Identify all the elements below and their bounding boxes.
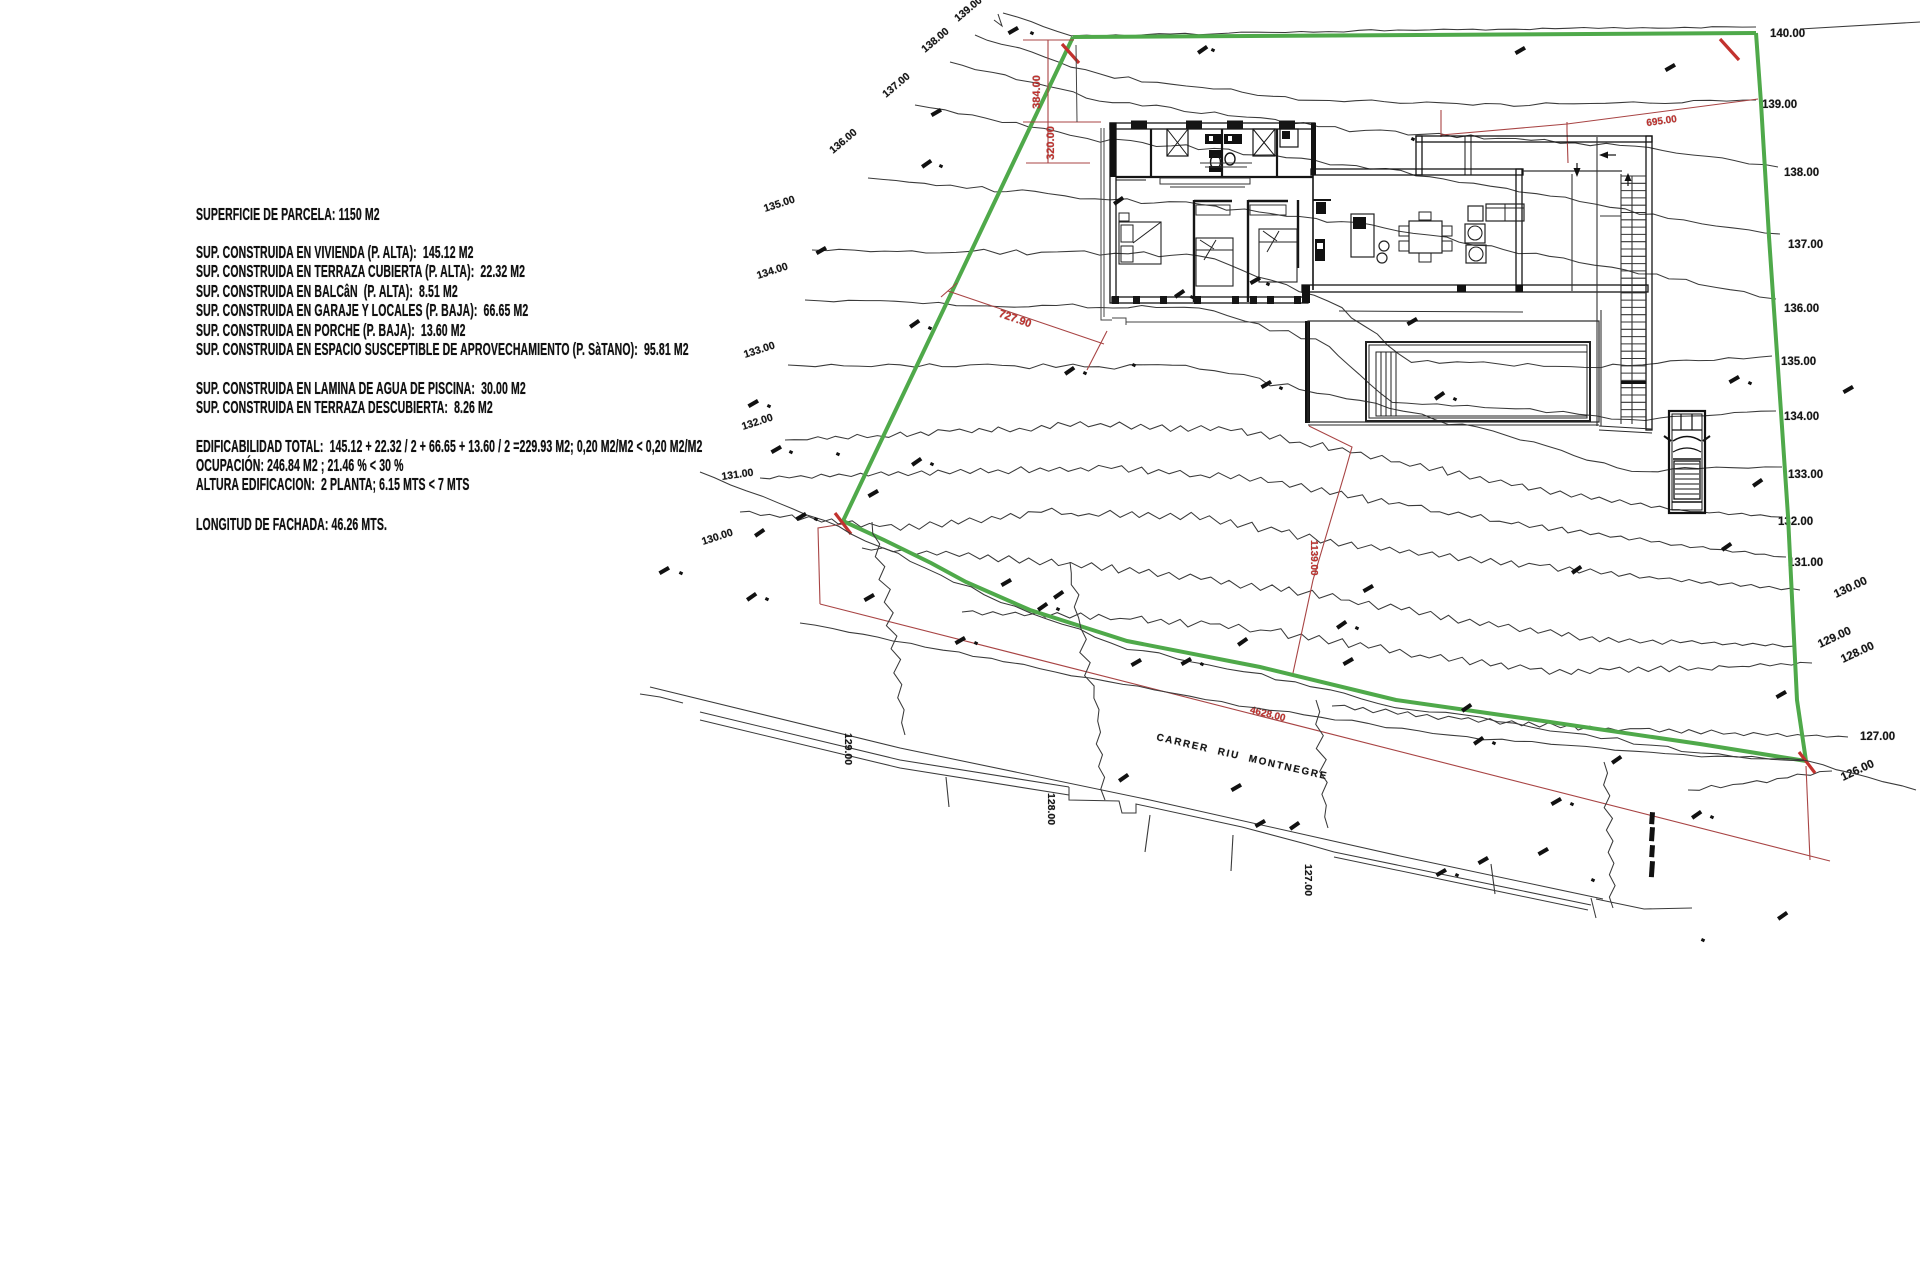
svg-text:1139.00: 1139.00 <box>1308 540 1319 576</box>
svg-text:137.00: 137.00 <box>880 70 912 100</box>
svg-text:139.00: 139.00 <box>1762 99 1797 111</box>
svg-text:135.00: 135.00 <box>762 193 796 214</box>
svg-text:127.00: 127.00 <box>1860 731 1895 743</box>
svg-text:134.00: 134.00 <box>755 260 789 281</box>
svg-text:137.00: 137.00 <box>1788 239 1823 251</box>
svg-text:133.00: 133.00 <box>1788 469 1823 481</box>
svg-text:138.00: 138.00 <box>919 25 951 55</box>
svg-text:128.00: 128.00 <box>1045 793 1057 825</box>
svg-text:320.00: 320.00 <box>1045 126 1057 160</box>
svg-text:138.00: 138.00 <box>1784 167 1819 179</box>
svg-text:133.00: 133.00 <box>742 339 776 360</box>
svg-text:140.00: 140.00 <box>1770 28 1805 40</box>
svg-text:CARRER RIU MONTNEGRE: CARRER RIU MONTNEGRE <box>1155 732 1329 782</box>
svg-text:130.00: 130.00 <box>1832 575 1869 601</box>
svg-text:132.00: 132.00 <box>1778 516 1813 528</box>
svg-text:129.00: 129.00 <box>1816 625 1853 651</box>
svg-text:128.00: 128.00 <box>1839 640 1876 666</box>
svg-text:136.00: 136.00 <box>827 126 859 156</box>
svg-text:131.00: 131.00 <box>1788 557 1823 569</box>
svg-text:727.90: 727.90 <box>997 308 1033 330</box>
svg-text:129.00: 129.00 <box>842 733 854 765</box>
svg-text:131.00: 131.00 <box>721 467 755 483</box>
svg-text:135.00: 135.00 <box>1781 356 1816 368</box>
svg-text:139.00: 139.00 <box>952 0 984 24</box>
svg-text:136.00: 136.00 <box>1784 303 1819 315</box>
svg-text:384.00: 384.00 <box>1031 75 1043 109</box>
svg-text:134.00: 134.00 <box>1784 411 1819 423</box>
svg-text:695.00: 695.00 <box>1646 114 1678 129</box>
svg-text:130.00: 130.00 <box>700 526 734 547</box>
svg-text:132.00: 132.00 <box>740 411 774 432</box>
svg-text:126.00: 126.00 <box>1839 758 1876 784</box>
svg-text:127.00: 127.00 <box>1302 864 1314 896</box>
